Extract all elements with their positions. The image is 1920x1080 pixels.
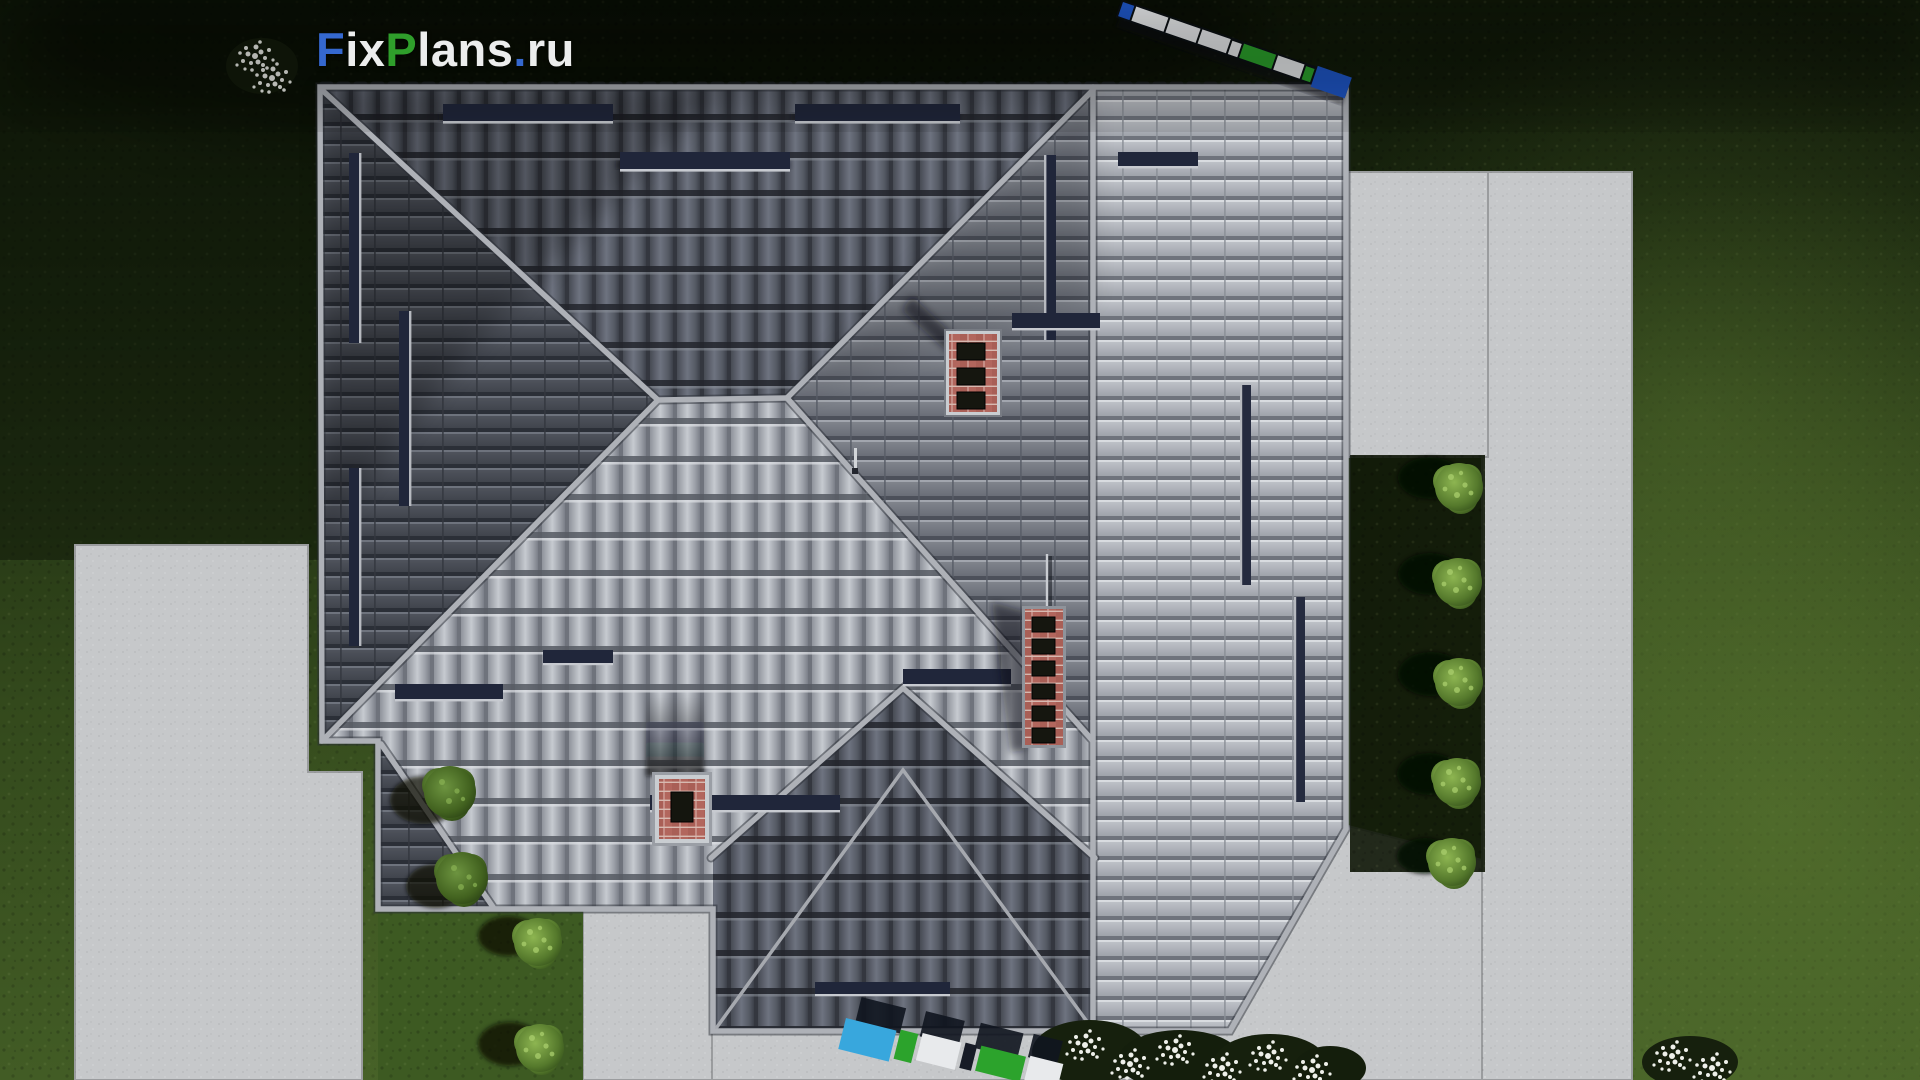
logo-segment: F <box>316 23 345 76</box>
render-canvas <box>0 0 1920 1080</box>
snow-guard-bar <box>1240 385 1251 585</box>
chimney-small <box>646 694 712 846</box>
logo-segment: . <box>513 23 527 76</box>
snow-guard-bar <box>399 311 411 506</box>
aerial-house-render: FixPlans.ru <box>0 0 1920 1080</box>
ridge-line <box>658 398 787 400</box>
snow-guard-bar <box>1294 597 1305 802</box>
logo-segment: ru <box>527 23 575 76</box>
snow-guard-bar <box>349 153 361 343</box>
snow-guard-bar <box>395 684 503 701</box>
fixplans-watermark: FixPlans.ru <box>316 22 575 77</box>
snow-guard-bar <box>1012 313 1100 330</box>
logo-segment: lans <box>417 23 513 76</box>
snow-guard-bar <box>815 982 950 996</box>
snow-guard-bar <box>349 468 361 646</box>
logo-segment: P <box>385 23 417 76</box>
snow-guard-bar <box>543 650 613 665</box>
logo-segment: ix <box>345 23 385 76</box>
snow-guard-bar <box>903 669 1011 686</box>
top-vignette <box>0 0 1920 120</box>
snow-guard-bar <box>616 152 790 172</box>
snow-guard-bar <box>1118 152 1198 168</box>
snow-guard-bar <box>1044 155 1056 340</box>
